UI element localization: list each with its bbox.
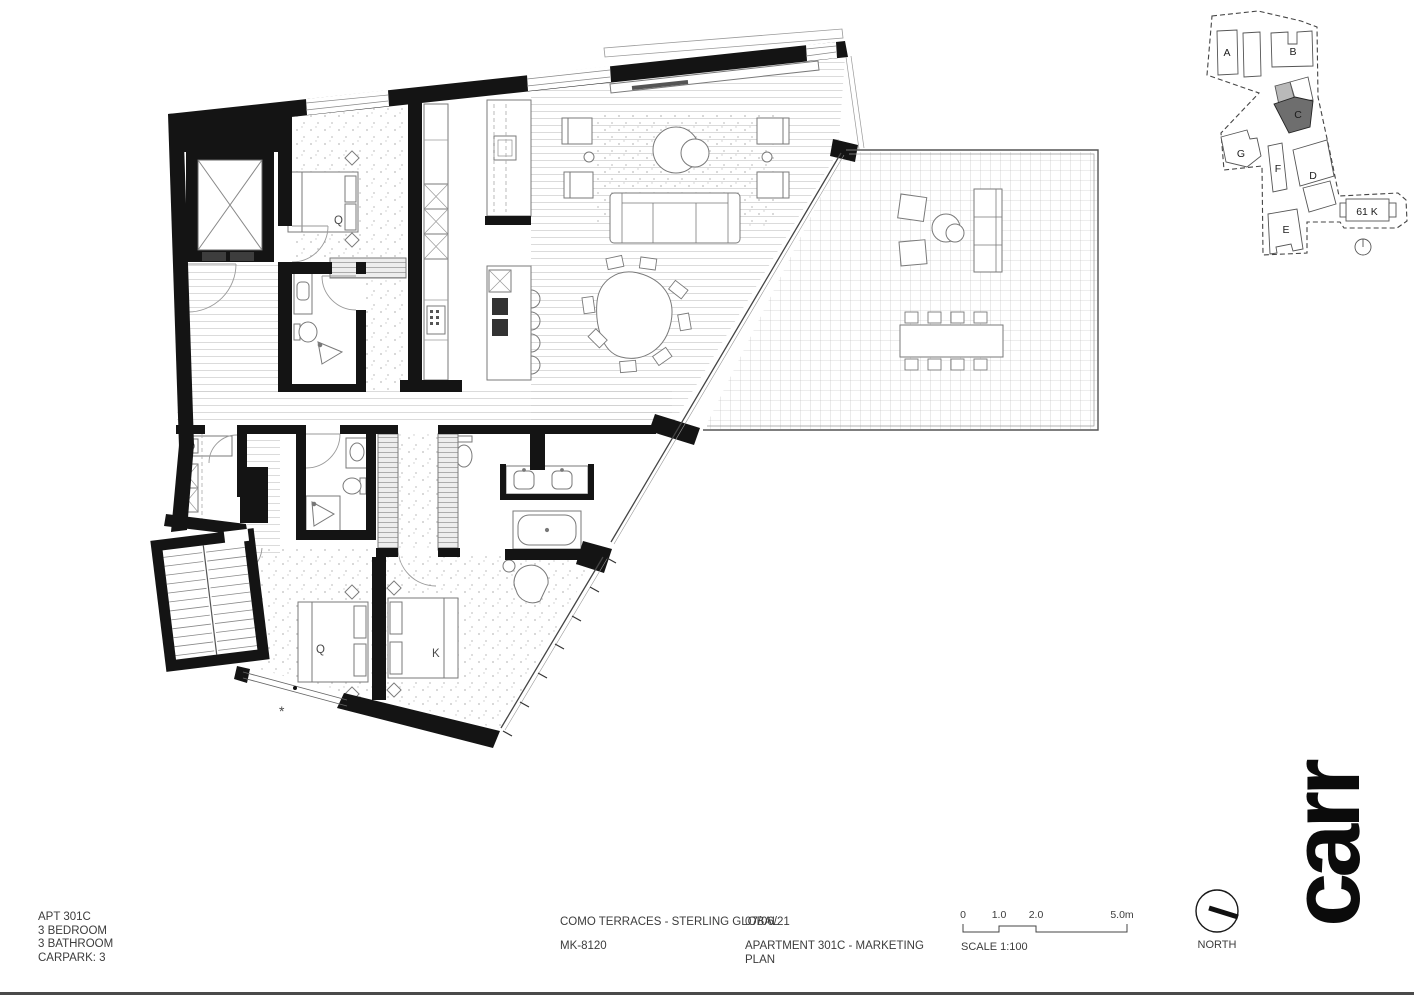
kitchen-joinery — [424, 100, 540, 380]
scale-label: SCALE 1:100 — [961, 941, 1028, 953]
lift-door — [202, 252, 226, 261]
label-b: B — [1289, 46, 1296, 58]
label-c: C — [1294, 109, 1302, 121]
corridor-floor — [177, 390, 672, 425]
scale-tick-2: 2.0 — [1029, 909, 1044, 921]
label-a: A — [1223, 47, 1230, 59]
north-label: NORTH — [1198, 939, 1237, 951]
outdoor-lounge — [974, 189, 1002, 272]
label-e: E — [1282, 224, 1289, 236]
master-bed-label: K — [432, 648, 440, 660]
bed3-label: Q — [316, 644, 325, 656]
lift — [198, 160, 262, 261]
stairs — [150, 528, 269, 672]
label-f: F — [1275, 163, 1281, 175]
pantry-units — [424, 184, 448, 259]
entry-floor — [183, 262, 278, 392]
scale-tick-5: 5.0m — [1110, 909, 1134, 921]
label-g: G — [1237, 148, 1245, 160]
sofa — [610, 193, 740, 243]
footer-rule — [0, 992, 1414, 995]
outdoor-dining-table — [900, 325, 1003, 357]
bathroom-fixtures — [306, 438, 368, 532]
scale-bar: 0 1.0 2.0 5.0m SCALE 1:100 — [960, 909, 1134, 953]
sheet-canvas: Q Q K * A B C G F — [0, 0, 1414, 1000]
drawing-title-line1: APARTMENT 301C - MARKETING — [745, 940, 924, 954]
apt-carpark: CARPARK: 3 — [38, 952, 113, 966]
master-ensuite-fixtures — [456, 436, 588, 549]
key-plan: A B C G F D E 61 K — [1207, 11, 1407, 255]
bedroom2-carpet — [292, 104, 408, 390]
scale-tick-0: 0 — [960, 909, 966, 921]
ensuite2-fixtures — [294, 272, 342, 364]
wir-carpet — [398, 434, 438, 548]
carr-logo: carr — [1285, 737, 1375, 953]
bed2-label: Q — [334, 215, 343, 227]
north-arrow: NORTH — [1196, 890, 1238, 951]
apartment-summary: APT 301C 3 BEDROOM 3 BATHROOM CARPARK: 3 — [38, 911, 113, 965]
label-d: D — [1309, 170, 1317, 182]
apt-bathrooms: 3 BATHROOM — [38, 938, 113, 952]
cooktop — [492, 298, 508, 315]
apt-number: APT 301C — [38, 911, 113, 925]
drawing-title: APARTMENT 301C - MARKETING PLAN — [745, 940, 924, 967]
window-marker: * — [279, 703, 285, 719]
drawing-date: 07/06/21 — [745, 916, 790, 930]
apt-bedrooms: 3 BEDROOM — [38, 925, 113, 939]
drawing-sheet: { "plan": { "bedroom2_label": "Q", "bedr… — [0, 0, 1414, 1000]
drawing-title-line2: PLAN — [745, 954, 924, 968]
scale-tick-1: 1.0 — [992, 909, 1007, 921]
label-61k: 61 K — [1356, 206, 1378, 218]
drawing-number: MK-8120 — [560, 940, 607, 954]
